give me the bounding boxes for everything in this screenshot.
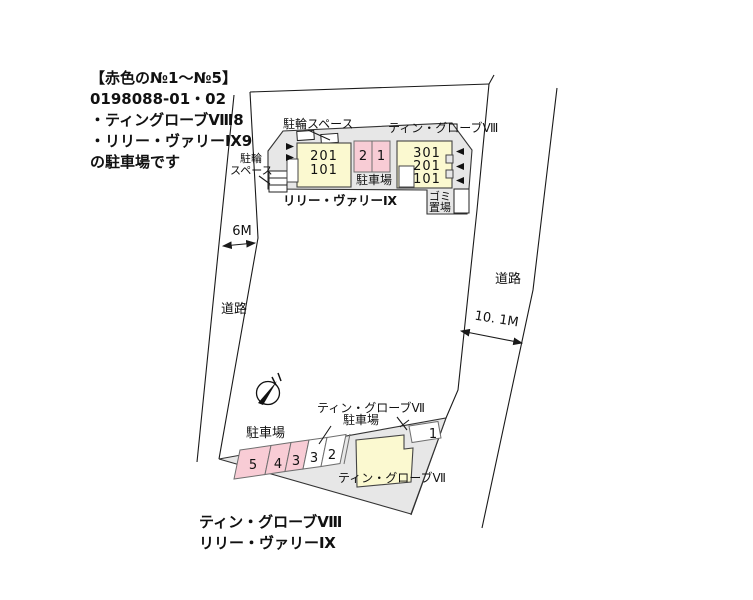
building-8-entrance (399, 166, 414, 187)
lily-valley-9-label: リリー・ヴァリーⅨ (283, 193, 397, 208)
south-parking-label: 駐車場 (246, 426, 285, 441)
right-road-label: 道路 (495, 271, 521, 287)
space-3b-number: 3 (310, 451, 318, 466)
note-line3: ・ティングローブⅧ8 (90, 111, 244, 129)
mid-parking-label: 駐車場 (356, 172, 392, 187)
site-top-boundary (250, 84, 489, 92)
trash-box (454, 189, 469, 213)
right-road-outer-edge (482, 88, 557, 528)
footer-line1: ティン・グローブⅧ (199, 513, 342, 531)
building-8-notch-2 (446, 170, 453, 178)
note-line1: 【赤色の№1〜№5】 (90, 69, 237, 87)
left-road-label: 道路 (221, 301, 247, 317)
g7-building-label: ティン・グローブⅦ (338, 470, 446, 485)
right-road-width-arrow (461, 331, 522, 343)
tin-globe-8-label: ティン・グローブⅧ (388, 120, 498, 135)
bike-space-top-label: 駐輪スペース (283, 116, 354, 131)
note-line5: の駐車場です (90, 153, 180, 171)
right-road-width: 10. 1M (473, 309, 519, 331)
site-plan-drawing: 201 101 2 1 駐車場 301 201 101 ゴミ 置場 駐輪スペース… (0, 0, 753, 600)
space-2-number: 2 (328, 448, 336, 463)
mid-cell-1-number: 1 (377, 149, 385, 164)
site-plan-page: 201 101 2 1 駐車場 301 201 101 ゴミ 置場 駐輪スペース… (0, 0, 753, 600)
corner-tick (489, 75, 494, 84)
left-road-width-arrow (223, 243, 255, 246)
footer-line2: リリー・ヴァリーⅨ (199, 534, 336, 552)
building-8-notch-1 (446, 155, 453, 163)
bike-rack-top-2 (321, 133, 339, 143)
building-9-unit-201: 201 (310, 149, 338, 164)
space-4-number: 4 (274, 457, 282, 472)
mid-cell-2-number: 2 (359, 149, 367, 164)
trash-label-line2: 置場 (429, 201, 451, 214)
bike-left-label-line2: スペース (230, 164, 273, 177)
space-5-number: 5 (249, 458, 257, 473)
north-compass-icon (257, 373, 282, 405)
space-3a-number: 3 (292, 454, 300, 469)
building-9-unit-101: 101 (310, 163, 338, 178)
bike-left-label-line1: 駐輪 (240, 151, 262, 165)
space-1-number: 1 (429, 427, 437, 442)
building-8-unit-101: 101 (413, 172, 441, 187)
note-line2: 0198088-01・02 (90, 90, 226, 108)
left-road-width: 6M (232, 224, 252, 239)
building-9-entrance (287, 159, 298, 182)
note-line4: ・リリー・ヴァリーⅨ9 (90, 132, 252, 150)
g7-leader-label-line2: 駐車場 (343, 412, 379, 427)
